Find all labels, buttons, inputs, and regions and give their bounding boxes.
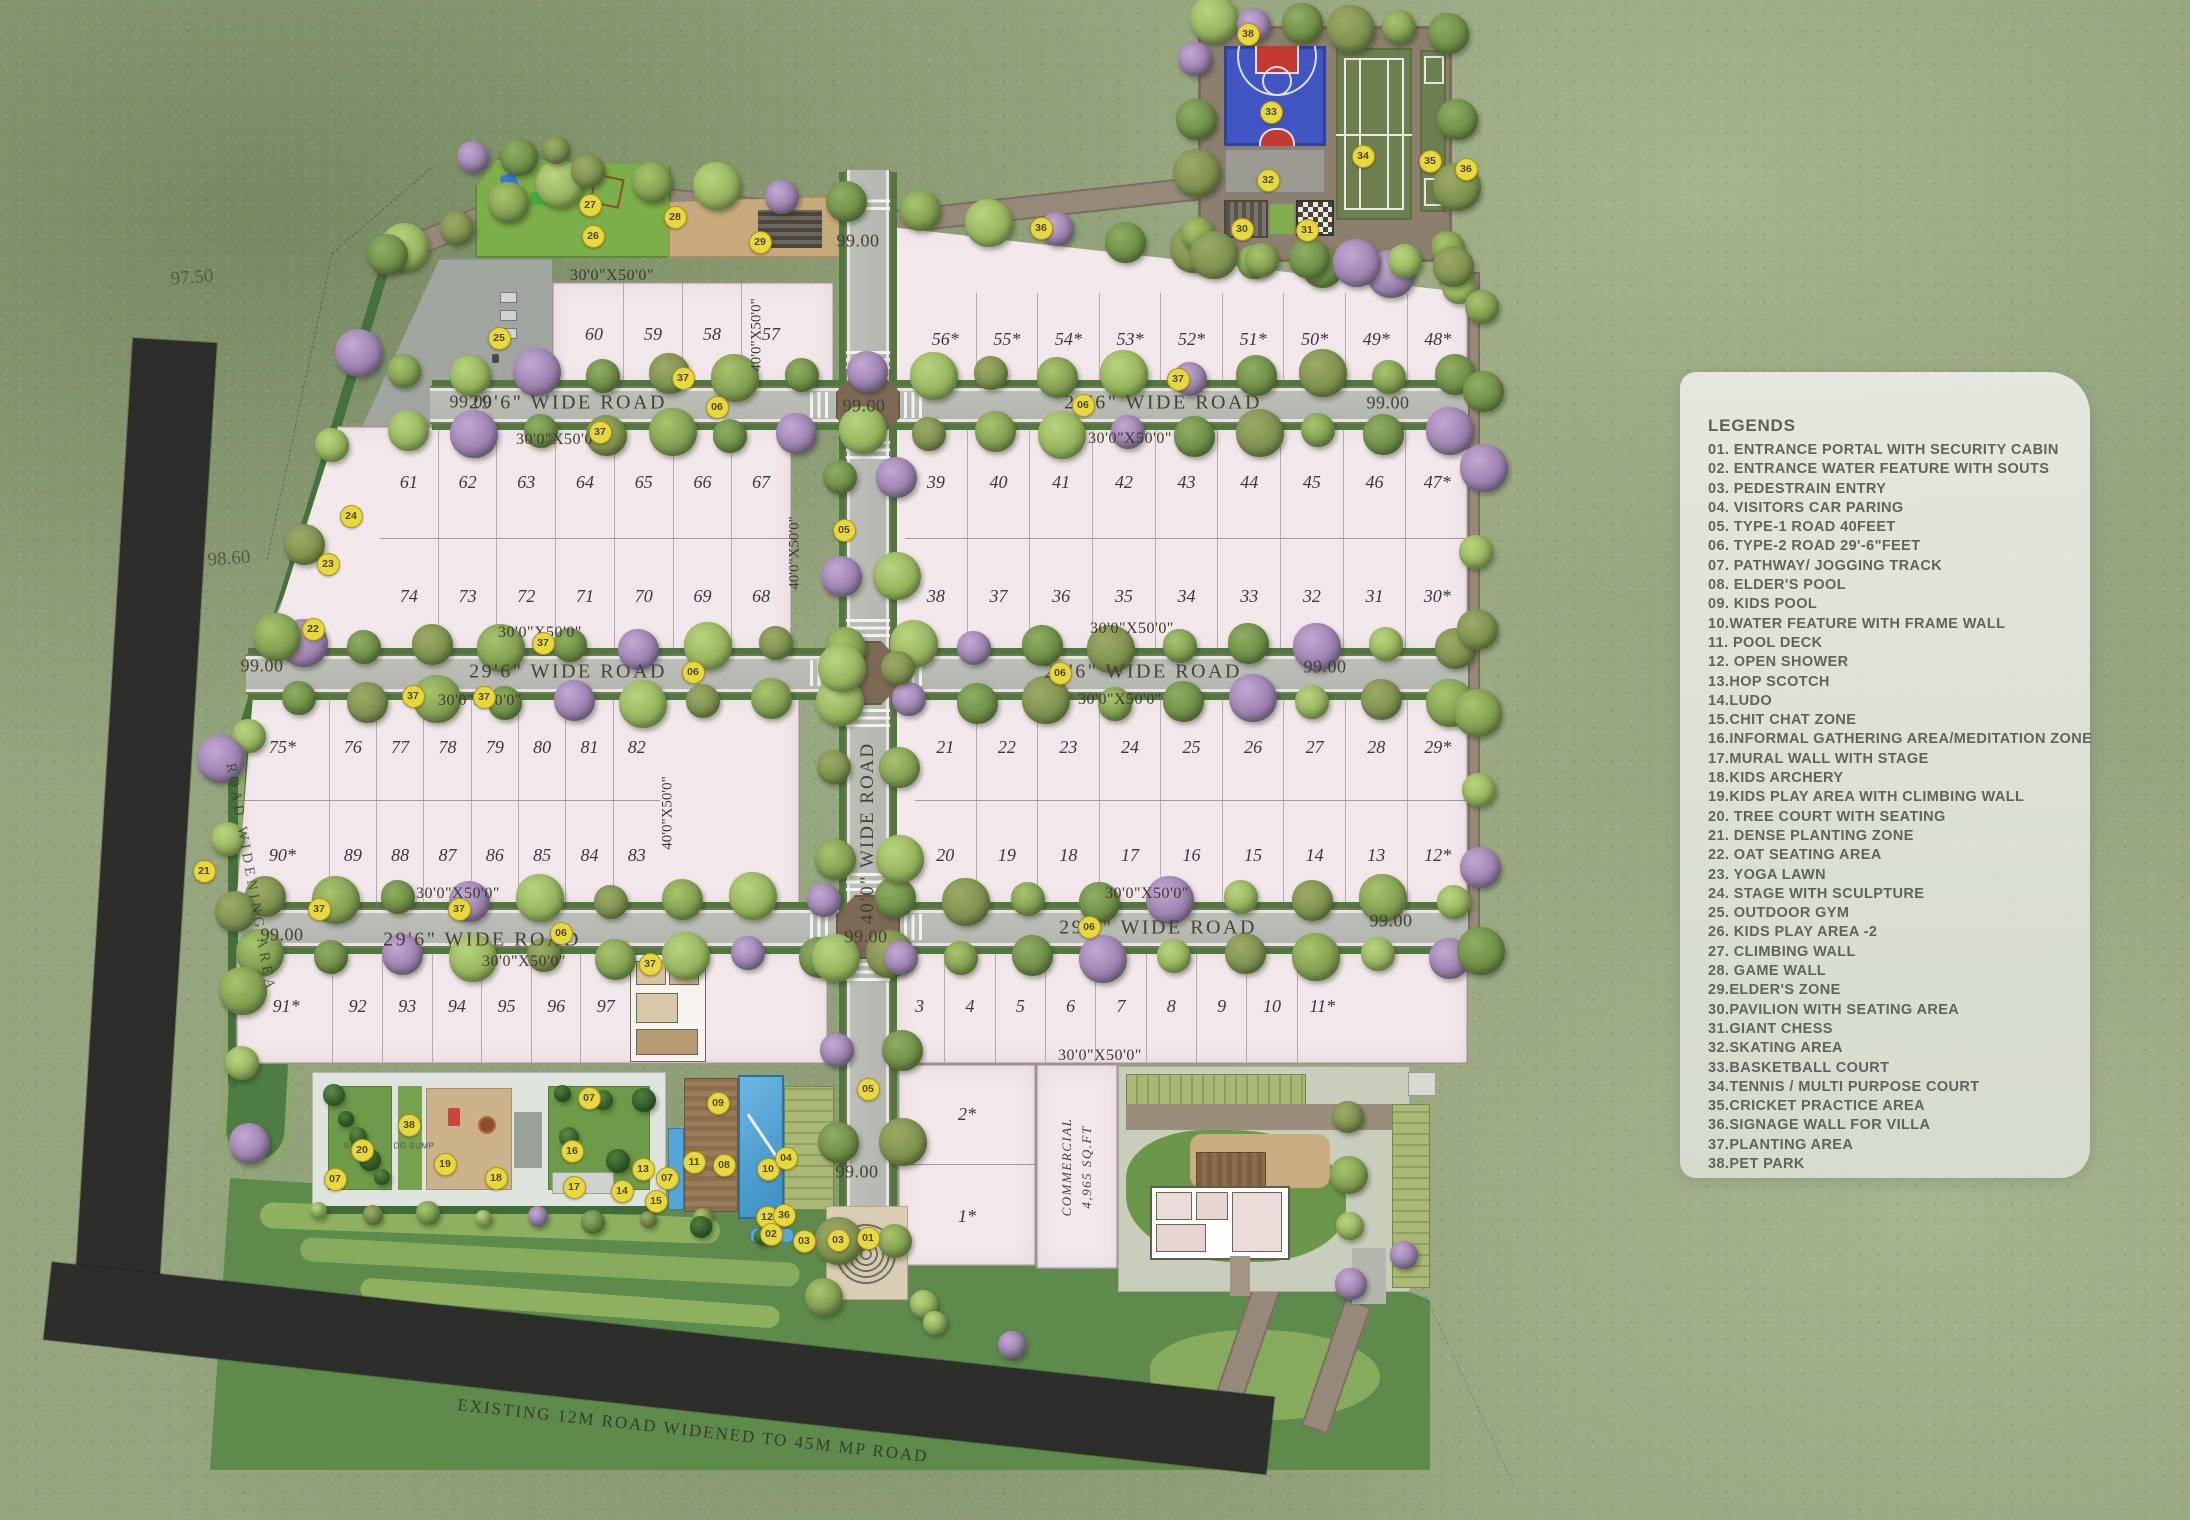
- legend-item: 04. VISITORS CAR PARING: [1708, 499, 2090, 518]
- tree: [606, 1149, 630, 1173]
- legend-item: 35.CRICKET PRACTICE AREA: [1708, 1097, 2090, 1116]
- plot-number: 11*: [1309, 996, 1335, 1017]
- play-carousel: [478, 1116, 496, 1134]
- plot-number: 91*: [273, 996, 300, 1017]
- tree: [944, 941, 978, 975]
- tree: [619, 680, 667, 728]
- tree: [1388, 244, 1422, 278]
- legend-item: 27. CLIMBING WALL: [1708, 943, 2090, 962]
- tree: [873, 552, 921, 600]
- tree: [1105, 222, 1146, 263]
- plot-number: 27: [1306, 737, 1324, 758]
- legend-badge-29: 29: [749, 231, 772, 254]
- legend-badge-16: 16: [561, 1140, 584, 1163]
- legend-badge-22: 22: [302, 618, 325, 641]
- legend-badge-32: 32: [1257, 169, 1280, 192]
- legend-badge-33: 33: [1260, 101, 1283, 124]
- tree: [875, 877, 916, 918]
- tree: [1333, 239, 1381, 287]
- legend-badge-38: 38: [1237, 23, 1260, 46]
- tree: [1228, 623, 1269, 664]
- plot-number: 47*: [1424, 472, 1451, 493]
- map-label: 99.00: [450, 392, 493, 413]
- tree: [595, 939, 636, 980]
- map-label: 29'6" WIDE ROAD: [1044, 661, 1242, 684]
- plot-number: 36: [1052, 586, 1070, 607]
- tree: [388, 410, 429, 451]
- legend-item: 37.PLANTING AREA: [1708, 1136, 2090, 1155]
- plot-number: 59: [644, 324, 662, 345]
- legend-badge-28: 28: [664, 206, 687, 229]
- room: [1196, 1192, 1228, 1220]
- plot-number: 72: [517, 586, 535, 607]
- tree: [475, 1210, 492, 1227]
- map-label: COMMERCIAL 4,965 SQ.FT: [1057, 1118, 1097, 1217]
- club-deck: [1196, 1152, 1266, 1190]
- legend-item: 25. OUTDOOR GYM: [1708, 904, 2090, 923]
- legend-badge-06: 06: [550, 922, 573, 945]
- legend-badge-06: 06: [1072, 394, 1095, 417]
- tree: [323, 1084, 345, 1106]
- legend-item: 20. TREE COURT WITH SEATING: [1708, 808, 2090, 827]
- tree: [1330, 1156, 1368, 1194]
- plot-number: 21: [936, 737, 954, 758]
- tree: [450, 355, 491, 396]
- tree: [554, 680, 595, 721]
- tree: [528, 1206, 549, 1227]
- plot-number: 44: [1240, 472, 1258, 493]
- tree: [1176, 99, 1217, 140]
- legend-badge-15: 15: [645, 1190, 668, 1213]
- tree: [581, 1210, 605, 1234]
- tree: [367, 234, 408, 275]
- tree: [1236, 355, 1277, 396]
- tree: [1361, 937, 1395, 971]
- tree: [440, 211, 474, 245]
- map-label: 30'0"X50'0": [570, 267, 654, 285]
- plot-number: 19: [998, 845, 1016, 866]
- tree: [1363, 414, 1404, 455]
- legend-badge-31: 31: [1296, 219, 1319, 242]
- car-stall: [500, 310, 517, 321]
- plot-number: 52*: [1178, 329, 1205, 350]
- plot-cell: 1*: [898, 1165, 1036, 1267]
- legend-item: 06. TYPE-2 ROAD 29'-6"FEET: [1708, 537, 2090, 556]
- car-stall: [500, 292, 517, 303]
- archery-patch: [514, 1112, 542, 1168]
- tree: [1426, 407, 1474, 455]
- plot-number: 66: [693, 472, 711, 493]
- plot-number: 33: [1240, 586, 1258, 607]
- tree: [347, 682, 388, 723]
- plot-number: 2*: [958, 1104, 976, 1125]
- plot-number: 26: [1244, 737, 1262, 758]
- crosswalk: [904, 914, 926, 940]
- tree: [975, 411, 1016, 452]
- legend-item: 09. KIDS POOL: [1708, 595, 2090, 614]
- legend-item: 05. TYPE-1 ROAD 40FEET: [1708, 518, 2090, 537]
- legend-badge-17: 17: [563, 1176, 586, 1199]
- map-label: 40'0" WIDE ROAD: [857, 742, 879, 924]
- plot-number: 69: [693, 586, 711, 607]
- tree: [818, 1122, 859, 1163]
- legend-item: 38.PET PARK: [1708, 1155, 2090, 1174]
- legend-badge-37: 37: [1167, 368, 1190, 391]
- legend-badge-35: 35: [1419, 150, 1442, 173]
- tree: [957, 683, 998, 724]
- legend-title: LEGENDS: [1708, 416, 2090, 436]
- tree: [1301, 413, 1335, 447]
- plot-number: 5: [1016, 996, 1025, 1017]
- basketball-semi: [1259, 128, 1295, 146]
- tree: [1390, 1241, 1417, 1268]
- tree: [500, 138, 538, 176]
- plot-number: 70: [635, 586, 653, 607]
- plot-number: 24: [1121, 737, 1139, 758]
- legend-badge-07: 07: [578, 1087, 601, 1110]
- legend-item: 15.CHIT CHAT ZONE: [1708, 711, 2090, 730]
- map-label: 99.00: [1304, 657, 1347, 678]
- plot-number: 16: [1183, 845, 1201, 866]
- tree: [881, 651, 915, 685]
- tree: [1361, 679, 1402, 720]
- legend-badge-23: 23: [317, 553, 340, 576]
- club-parking-top: [1126, 1074, 1306, 1106]
- tree: [879, 747, 920, 788]
- tree: [374, 1169, 389, 1184]
- map-label: 99.00: [1367, 393, 1410, 414]
- plot-number: 55*: [993, 329, 1020, 350]
- club-stair-path: [1230, 1256, 1250, 1296]
- plot-number: 15: [1244, 845, 1262, 866]
- plot-number: 6: [1066, 996, 1075, 1017]
- plot-number: 95: [497, 996, 515, 1017]
- plot-number: 97: [597, 996, 615, 1017]
- legend-badge-36: 36: [1030, 217, 1053, 240]
- plot-number: 23: [1059, 737, 1077, 758]
- tree: [974, 356, 1008, 390]
- plot-number: 82: [628, 737, 646, 758]
- tree: [488, 182, 529, 223]
- tree: [690, 1216, 712, 1238]
- legend-badge-05: 05: [833, 519, 856, 542]
- tree: [1336, 1212, 1363, 1239]
- tree: [1327, 5, 1375, 53]
- tree: [1178, 42, 1212, 76]
- plot-number: 75*: [269, 737, 296, 758]
- map-label: 30'0"X50'0": [1058, 1047, 1142, 1065]
- plot-number: 32: [1303, 586, 1321, 607]
- plot-number: 78: [438, 737, 456, 758]
- tree: [1038, 411, 1086, 459]
- tree: [1236, 409, 1284, 457]
- plot-number: 29*: [1424, 737, 1451, 758]
- tree: [879, 1118, 927, 1166]
- map-label: 29'6" WIDE ROAD: [469, 661, 667, 684]
- tree: [912, 417, 946, 451]
- plot-number: 71: [576, 586, 594, 607]
- tree: [1460, 444, 1508, 492]
- tree: [878, 1224, 912, 1258]
- tree: [381, 880, 415, 914]
- tree: [1292, 933, 1340, 981]
- map-label: 99.00: [241, 656, 284, 677]
- map-label: 97.50: [170, 266, 214, 291]
- tree: [338, 1111, 353, 1126]
- map-label: 99.00: [843, 396, 886, 417]
- tree: [412, 624, 453, 665]
- tree: [1245, 243, 1279, 277]
- tree: [776, 413, 817, 454]
- legend-badge-13: 13: [632, 1158, 655, 1181]
- plot-number: 40: [990, 472, 1008, 493]
- tree: [1465, 290, 1499, 324]
- map-label: 99.00: [845, 927, 888, 948]
- tree: [1224, 880, 1258, 914]
- swimming-pool: [738, 1075, 784, 1219]
- tree: [632, 162, 673, 203]
- tree: [314, 940, 348, 974]
- legend-badge-05: 05: [857, 1078, 880, 1101]
- tree: [923, 1311, 947, 1335]
- legend-item: 24. STAGE WITH SCULPTURE: [1708, 885, 2090, 904]
- legend-item: 14.LUDO: [1708, 692, 2090, 711]
- crease: [1424, 56, 1444, 84]
- plot-number: 53*: [1116, 329, 1143, 350]
- plot-number: 80: [533, 737, 551, 758]
- tree: [416, 1201, 440, 1225]
- basketball-court: [1224, 46, 1326, 146]
- plot-number: 85: [533, 845, 551, 866]
- plot-number: 83: [628, 845, 646, 866]
- legend-item: 36.SIGNAGE WALL FOR VILLA: [1708, 1116, 2090, 1135]
- room: [1156, 1224, 1206, 1252]
- tree: [759, 626, 793, 660]
- map-label: 30'0"X50'0": [1105, 885, 1189, 903]
- tree: [1157, 939, 1191, 973]
- tree: [662, 879, 703, 920]
- existing-road-left: [75, 338, 217, 1291]
- club-signage: [1408, 1072, 1436, 1096]
- legend-badge-24: 24: [340, 505, 363, 528]
- plot-number: 39: [927, 472, 945, 493]
- legend-item: 18.KIDS ARCHERY: [1708, 769, 2090, 788]
- legend-badge-27: 27: [579, 194, 602, 217]
- tree: [821, 556, 862, 597]
- plot-number: 54*: [1055, 329, 1082, 350]
- plot-number: 4: [965, 996, 974, 1017]
- legend-badge-03: 03: [793, 1230, 816, 1253]
- legend-badge-25: 25: [488, 327, 511, 350]
- plot-number: 17: [1121, 845, 1139, 866]
- legend-badge-21: 21: [193, 860, 216, 883]
- tree: [229, 1123, 270, 1164]
- plot-row: 91*929394959697: [240, 950, 630, 1062]
- plot-number: 58: [703, 324, 721, 345]
- tree: [586, 359, 620, 393]
- tree: [335, 329, 383, 377]
- free-throw-circle: [1262, 66, 1292, 96]
- plot-number: 12*: [1424, 845, 1451, 866]
- tree: [1011, 882, 1045, 916]
- tree: [818, 644, 866, 692]
- tree: [513, 348, 561, 396]
- legend-item: 01. ENTRANCE PORTAL WITH SECURITY CABIN: [1708, 441, 2090, 460]
- room: [636, 993, 678, 1023]
- tree: [815, 839, 856, 880]
- legend-item: 02. ENTRANCE WATER FEATURE WITH SOUTS: [1708, 460, 2090, 479]
- plot-number: 92: [349, 996, 367, 1017]
- legend-item: 03. PEDESTRAIN ENTRY: [1708, 480, 2090, 499]
- legend-item: 17.MURAL WALL WITH STAGE: [1708, 750, 2090, 769]
- legend-item: 08. ELDER'S POOL: [1708, 576, 2090, 595]
- map-label: 99.00: [1370, 911, 1413, 932]
- plot-number: 46: [1366, 472, 1384, 493]
- tree: [1079, 935, 1127, 983]
- plot-number: 87: [438, 845, 456, 866]
- plot-number: 1*: [958, 1206, 976, 1227]
- tree: [693, 162, 741, 210]
- legend-badge-09: 09: [707, 1092, 730, 1115]
- tennis-net: [1336, 134, 1412, 136]
- legend-item: 21. DENSE PLANTING ZONE: [1708, 827, 2090, 846]
- tree: [554, 1085, 571, 1102]
- legend-badge-37: 37: [402, 685, 425, 708]
- tree: [1457, 927, 1505, 975]
- tree: [884, 941, 918, 975]
- tree: [1454, 689, 1502, 737]
- tree: [310, 1202, 327, 1219]
- legend-badge-18: 18: [485, 1167, 508, 1190]
- map-label: 30'0"X50'0": [1090, 620, 1174, 638]
- legend-list: 01. ENTRANCE PORTAL WITH SECURITY CABIN0…: [1708, 441, 2090, 1174]
- plot-number: 9: [1217, 996, 1226, 1017]
- legend-item: 29.ELDER'S ZONE: [1708, 981, 2090, 1000]
- legend-item: 10.WATER FEATURE WITH FRAME WALL: [1708, 615, 2090, 634]
- tree: [662, 932, 710, 980]
- plot-number: 77: [391, 737, 409, 758]
- legend-badge-37: 37: [672, 367, 695, 390]
- legend-badge-06: 06: [1078, 916, 1101, 939]
- legend-item: 11. POOL DECK: [1708, 634, 2090, 653]
- tree: [1012, 935, 1053, 976]
- plot-number: 7: [1116, 996, 1125, 1017]
- legend-badge-37: 37: [448, 898, 471, 921]
- villa-master-plan: LEGENDS 01. ENTRANCE PORTAL WITH SECURIT…: [0, 0, 2190, 1520]
- legend-badge-37: 37: [639, 953, 662, 976]
- map-label: 30'0"X50'0": [1088, 430, 1172, 448]
- legend-badge-08: 08: [713, 1154, 736, 1177]
- tree: [876, 835, 924, 883]
- tree: [1437, 885, 1471, 919]
- tree: [457, 141, 490, 174]
- legend-badge-14: 14: [611, 1180, 634, 1203]
- plot-number: 45: [1303, 472, 1321, 493]
- legend-panel: LEGENDS 01. ENTRANCE PORTAL WITH SECURIT…: [1680, 372, 2090, 1178]
- tree: [826, 181, 867, 222]
- crosswalk: [810, 392, 832, 418]
- tree: [282, 681, 316, 715]
- room: [1156, 1192, 1192, 1220]
- legend-badge-37: 37: [308, 898, 331, 921]
- plot-number: 43: [1178, 472, 1196, 493]
- plot-number: 64: [576, 472, 594, 493]
- plot-number: 79: [486, 737, 504, 758]
- plot-number: 37: [990, 586, 1008, 607]
- plot-number: 63: [517, 472, 535, 493]
- tree: [686, 684, 720, 718]
- legend-badge-04: 04: [775, 1147, 798, 1170]
- legend-item: 34.TENNIS / MULTI PURPOSE COURT: [1708, 1078, 2090, 1097]
- tree: [1372, 360, 1406, 394]
- room: [1232, 1192, 1282, 1252]
- map-label: 29'6" WIDE ROAD: [469, 392, 667, 415]
- legend-item: 32.SKATING AREA: [1708, 1039, 2090, 1058]
- legend-badge-06: 06: [1049, 662, 1072, 685]
- tree: [817, 750, 851, 784]
- legend-badge-07: 07: [324, 1168, 347, 1191]
- map-label: 99.00: [836, 1162, 879, 1183]
- tree: [957, 631, 991, 665]
- tree: [632, 1088, 656, 1112]
- legend-item: 22. OAT SEATING AREA: [1708, 846, 2090, 865]
- plot-number: 48*: [1424, 329, 1451, 350]
- play-tower: [448, 1108, 460, 1126]
- tree: [1462, 773, 1496, 807]
- tree: [347, 630, 381, 664]
- tree: [805, 1278, 843, 1316]
- tree: [225, 1046, 259, 1080]
- plot-number: 14: [1306, 845, 1324, 866]
- tree: [1457, 609, 1498, 650]
- legend-badge-37: 37: [532, 632, 555, 655]
- tree: [1163, 681, 1204, 722]
- tree: [942, 878, 990, 926]
- mini-lawn: [1270, 204, 1294, 234]
- legend-item: 31.GIANT CHESS: [1708, 1020, 2090, 1039]
- plot-number: 42: [1115, 472, 1133, 493]
- tree: [1369, 627, 1403, 661]
- tree: [785, 358, 819, 392]
- map-label: 98.60: [207, 547, 251, 572]
- tree: [729, 872, 777, 920]
- plot-number: 96: [547, 996, 565, 1017]
- plot-number: 3: [915, 996, 924, 1017]
- plot-number: 81: [580, 737, 598, 758]
- plot-number: 62: [459, 472, 477, 493]
- legend-badge-01: 01: [857, 1227, 880, 1250]
- tree: [1437, 99, 1478, 140]
- tree: [882, 1030, 923, 1071]
- legend-badge-06: 06: [682, 661, 705, 684]
- tree: [1289, 238, 1330, 279]
- plot-number: 30*: [1424, 586, 1451, 607]
- tree: [823, 460, 857, 494]
- plot-number: 38: [927, 586, 945, 607]
- tree: [1173, 149, 1221, 197]
- plot-number: 31: [1366, 586, 1384, 607]
- map-label: DG SUMP: [394, 1142, 435, 1151]
- clubhouse-building: [1150, 1186, 1290, 1260]
- plot-number: 22: [998, 737, 1016, 758]
- tree: [450, 410, 498, 458]
- tree: [1190, 231, 1238, 279]
- plot-number: 73: [459, 586, 477, 607]
- plot-number: 18: [1059, 845, 1077, 866]
- legend-item: 19.KIDS PLAY AREA WITH CLIMBING WALL: [1708, 788, 2090, 807]
- plot-number: 34: [1178, 586, 1196, 607]
- tree: [571, 154, 605, 188]
